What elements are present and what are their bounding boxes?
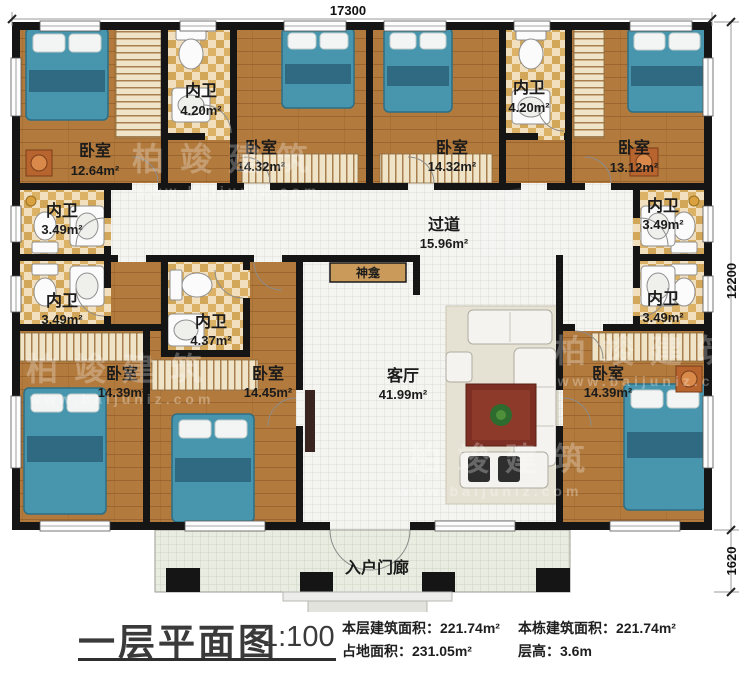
floor-plan-svg: 卧室 12.64m² 内卫 4.20m² 卧室 14.32m² 卧室 14.32… <box>0 0 750 674</box>
room-area: 3.49m² <box>41 222 83 237</box>
stats-column-left: 本层建筑面积：221.74m² 占地面积：231.05m² <box>342 617 500 663</box>
bed <box>172 414 254 522</box>
room-area: 3.49m² <box>642 310 684 325</box>
room-area: 14.45m² <box>244 385 293 400</box>
entry-step <box>283 592 452 601</box>
room-label: 内卫 <box>647 196 679 215</box>
watermark-url: www.baijuniz.com <box>135 183 321 199</box>
room-area: 13.12m² <box>610 160 659 175</box>
stat-floor-height: 层高：3.6m <box>518 640 676 663</box>
plan-scale: 1:100 <box>262 621 335 654</box>
porch-pillar <box>536 568 570 592</box>
room-label: 内卫 <box>185 81 217 100</box>
stat-label: 本层建筑面积： <box>342 620 440 636</box>
wardrobe <box>116 26 161 138</box>
stat-value: 231.05m² <box>412 643 472 659</box>
porch-pillar <box>422 572 455 592</box>
shrine-label: 神龛 <box>356 265 381 280</box>
room-label: 内卫 <box>195 312 227 331</box>
room-label: 内卫 <box>513 78 545 97</box>
watermark-brand: 柏竣建筑 <box>554 333 746 369</box>
stat-label: 本栋建筑面积： <box>518 620 616 636</box>
tv-cabinet <box>305 390 315 452</box>
room-label: 过道 <box>428 215 460 234</box>
room-label: 卧室 <box>436 138 468 157</box>
floor-plan-page: 卧室 12.64m² 内卫 4.20m² 卧室 14.32m² 卧室 14.32… <box>0 0 750 674</box>
stat-value: 221.74m² <box>616 620 676 636</box>
stat-land-area: 占地面积：231.05m² <box>342 640 500 663</box>
bed <box>384 28 452 112</box>
porch-pillar <box>166 568 200 592</box>
watermark-url: www.baijuniz.com <box>557 373 743 389</box>
stat-building-area: 本栋建筑面积：221.74m² <box>518 617 676 640</box>
watermark-brand: 柏竣建筑 <box>26 351 218 387</box>
room-label: 客厅 <box>387 366 419 385</box>
room-area: 14.32m² <box>428 159 477 174</box>
bed <box>26 28 108 120</box>
room-label: 卧室 <box>252 364 284 383</box>
stats-column-right: 本栋建筑面积：221.74m² 层高：3.6m <box>518 617 676 663</box>
watermark-url: www.baijuniz.com <box>29 391 215 407</box>
watermark-brand: 柏竣建筑 <box>132 141 324 177</box>
dim-right-porch: 1620 <box>724 547 739 576</box>
room-label: 内卫 <box>46 291 78 310</box>
porch-label: 入户门廊 <box>345 558 409 577</box>
room-area: 4.20m² <box>508 100 550 115</box>
room-label: 内卫 <box>46 201 78 220</box>
title-block: 一层平面图 1:100 本层建筑面积：221.74m² 占地面积：231.05m… <box>0 612 750 674</box>
bed <box>624 384 706 510</box>
room-area: 15.96m² <box>420 236 469 251</box>
room-label: 卧室 <box>618 138 650 157</box>
room-area: 4.20m² <box>180 103 222 118</box>
bed <box>282 28 354 108</box>
stat-value: 221.74m² <box>440 620 500 636</box>
dim-right-main: 12200 <box>724 263 739 299</box>
room-area: 12.64m² <box>71 163 120 178</box>
wardrobe <box>574 26 604 138</box>
stat-value: 3.6m <box>560 643 592 659</box>
dim-top: 17300 <box>330 3 366 18</box>
room-label: 卧室 <box>79 141 111 160</box>
room-area: 3.49m² <box>41 312 83 327</box>
room-area: 41.99m² <box>379 387 428 402</box>
watermark-brand: 柏竣建筑 <box>409 441 601 477</box>
watermark-url: www.baijuniz.com <box>397 483 583 499</box>
title-underline <box>78 658 336 661</box>
stat-label: 占地面积： <box>342 643 412 659</box>
porch-pillar <box>300 572 333 592</box>
room-label: 内卫 <box>647 289 679 308</box>
bed <box>628 28 706 112</box>
room-area: 3.49m² <box>642 217 684 232</box>
room-area: 4.37m² <box>190 333 232 348</box>
stat-label: 层高： <box>518 643 560 659</box>
nightstand <box>26 150 52 176</box>
stat-floor-area: 本层建筑面积：221.74m² <box>342 617 500 640</box>
